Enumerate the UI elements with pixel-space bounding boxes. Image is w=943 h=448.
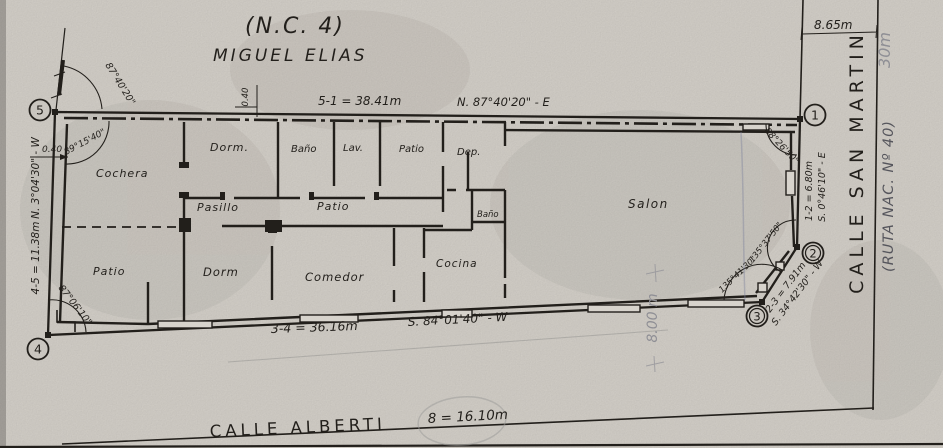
room-label-patio-top: Patio (399, 144, 424, 155)
north-bearing: N. 87°40'20" - E (457, 95, 550, 109)
plan-title-owner: MIGUEL ELIAS (213, 46, 368, 66)
street-san-martin-route: (RUTA NAC. Nº 40) (881, 120, 897, 272)
room-label-pasillo: Pasillo (197, 201, 239, 214)
south-dim: 3-4 = 36.16m (271, 318, 358, 336)
plan-title-nc: (N.C. 4) (245, 14, 345, 39)
plan-drawing: 5 1 2 3 4 (N.C. 4) MIGUEL ELIAS 5-1 = 38… (0, 0, 943, 448)
scan-edge-shadow (0, 0, 6, 448)
vertex-1-label: 1 (811, 108, 819, 123)
west-dim: 4-5 = 11.38m (30, 222, 42, 295)
vertex-2: 2 (803, 243, 824, 264)
survey-plan-scan: 5 1 2 3 4 (N.C. 4) MIGUEL ELIAS 5-1 = 38… (0, 0, 943, 448)
room-label-bano1: Baño (291, 144, 316, 155)
vertex-4-label: 4 (34, 342, 42, 357)
street-san-martin-width: 30m (875, 32, 894, 68)
north-dim: 5-1 = 38.41m (318, 94, 401, 108)
west-bearing: N. 3°04'30" - W (30, 137, 42, 219)
room-label-bano2: Baño (477, 210, 499, 220)
east-corner-to-street: 8.65m (814, 18, 852, 32)
east-bearing: S. 0°46'10" - E (817, 152, 828, 222)
room-label-cocina: Cocina (436, 258, 478, 270)
room-label-patio-sw: Patio (93, 265, 125, 278)
vertex-5-label: 5 (36, 103, 44, 118)
vertex-2-label: 2 (809, 247, 816, 261)
east-dim: 1-2 = 6.80m (804, 161, 815, 221)
pencil-depth-annotation: 8.00 m (645, 293, 661, 342)
room-label-patio-mid: Patio (317, 200, 349, 213)
room-label-dorm2: Dorm (203, 265, 239, 279)
vertex-3-label: 3 (753, 310, 760, 324)
room-label-cochera: Cochera (96, 167, 148, 180)
room-label-dep: Dep. (457, 147, 480, 158)
street-san-martin-name: CALLE SAN MARTIN (846, 30, 868, 294)
room-label-salon: Salon (628, 197, 669, 211)
north-offset: 0.40 (241, 88, 251, 107)
room-label-dorm1: Dorm. (210, 141, 249, 154)
room-label-lav: Lav. (343, 143, 363, 154)
room-label-comedor: Comedor (305, 270, 365, 284)
west-offset: 0.40 (42, 145, 62, 155)
